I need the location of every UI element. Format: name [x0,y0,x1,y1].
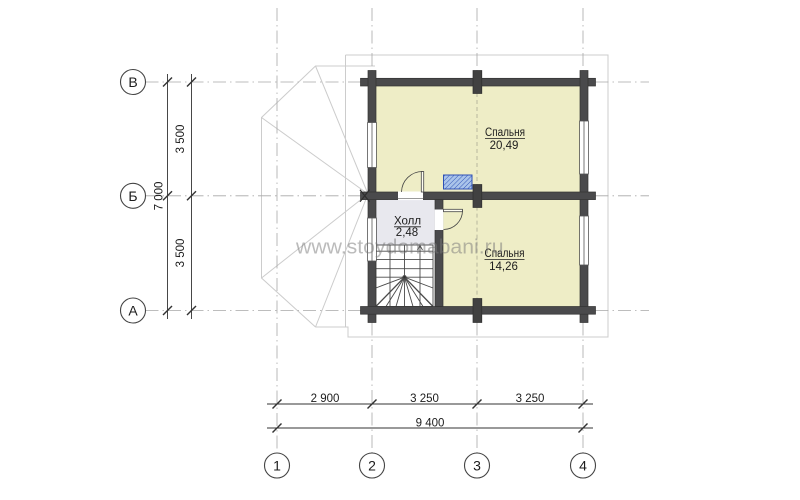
svg-text:3: 3 [473,458,481,474]
svg-text:3 250: 3 250 [516,393,545,405]
svg-text:14,26: 14,26 [489,261,518,273]
svg-text:3 250: 3 250 [410,393,439,405]
svg-text:А: А [128,303,138,319]
svg-text:www.stoydomabani.ru: www.stoydomabani.ru [295,237,504,259]
svg-text:9 400: 9 400 [416,418,445,430]
svg-text:20,49: 20,49 [490,140,519,152]
svg-text:2: 2 [368,458,376,474]
svg-text:Холл: Холл [394,216,421,228]
svg-text:Спальня: Спальня [485,127,525,139]
svg-text:2 900: 2 900 [311,393,340,405]
svg-text:3 500: 3 500 [175,239,187,268]
svg-text:4: 4 [579,458,587,474]
svg-text:1: 1 [273,458,281,474]
svg-text:3 500: 3 500 [175,125,187,154]
svg-text:Б: Б [128,188,137,204]
svg-text:7 000: 7 000 [154,182,166,211]
svg-text:В: В [128,74,137,90]
